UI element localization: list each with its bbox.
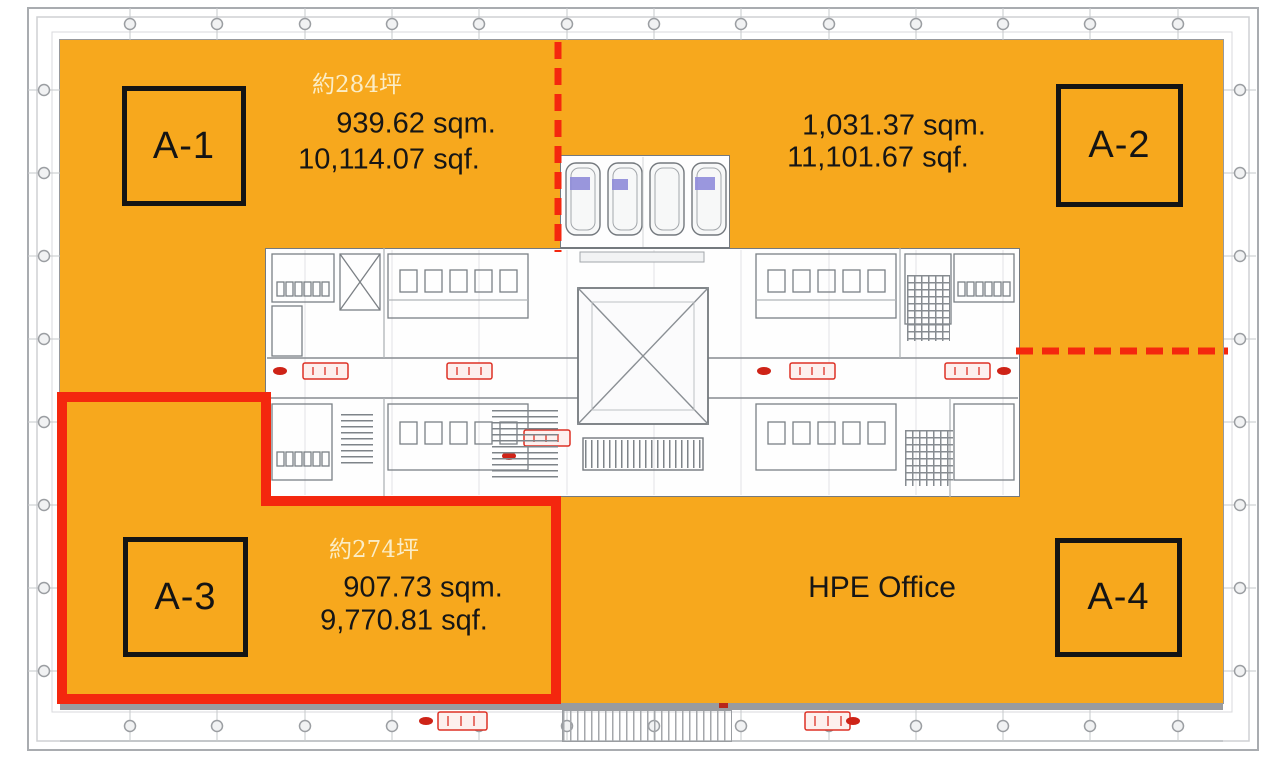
zone-a4-label: A-4	[1087, 576, 1149, 619]
zone-a1-box: A-1	[122, 86, 246, 206]
area-a1-sqf: 10,114.07 sqf.	[298, 144, 480, 177]
area-a1-tsubo: 約284坪	[312, 65, 402, 99]
zone-a2-label: A-2	[1088, 124, 1150, 167]
zone-a1-label: A-1	[153, 125, 215, 168]
zone-a3-box: A-3	[123, 537, 248, 657]
zone-a4-box: A-4	[1055, 538, 1182, 657]
area-a3-sqm: 907.73 sqm.	[343, 572, 503, 605]
area-a2-sqf: 11,101.67 sqf.	[787, 142, 969, 175]
area-a1-sqm: 939.62 sqm.	[336, 108, 496, 141]
tenant-hpe-office-label: HPE Office	[808, 571, 956, 605]
area-a3-sqf: 9,770.81 sqf.	[320, 605, 488, 638]
area-a2-sqm: 1,031.37 sqm.	[802, 110, 986, 143]
area-a3-tsubo: 約274坪	[329, 530, 419, 564]
floor-plan: A-1 A-2 A-3 A-4 約284坪 939.62 sqm. 10,114…	[0, 0, 1280, 771]
zone-a2-box: A-2	[1056, 84, 1183, 207]
zone-a3-label: A-3	[154, 576, 216, 619]
